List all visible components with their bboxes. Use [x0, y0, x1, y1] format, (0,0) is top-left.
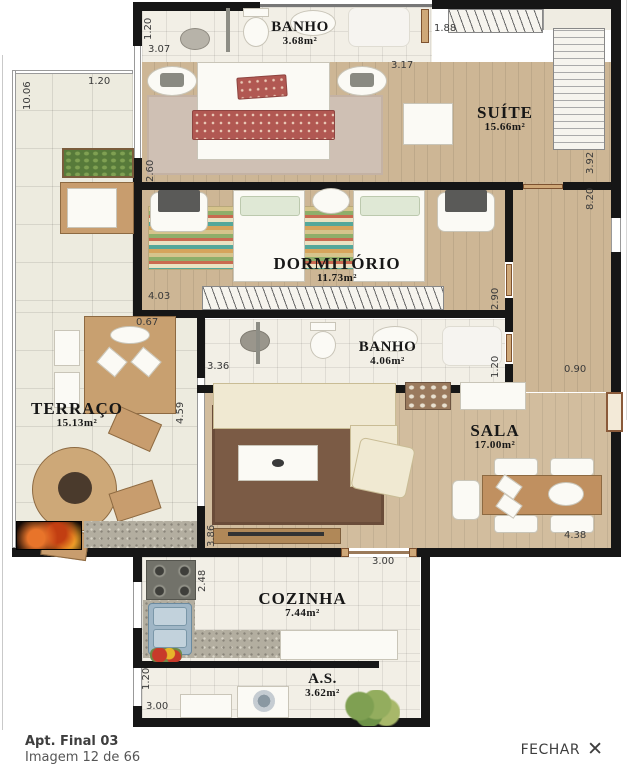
viewer-footer: Apt. Final 03 Imagem 12 de 66 FECHAR ✕ [0, 730, 629, 768]
bath1-pedestal-sink [180, 28, 210, 50]
room-area: 17.00m² [435, 440, 555, 452]
suite-terrace-glass-door [134, 46, 141, 158]
apartment-title: Apt. Final 03 [25, 734, 118, 749]
kitchen-window [133, 582, 142, 628]
close-button[interactable]: FECHAR ✕ [521, 740, 603, 759]
dimension-label: 10.06 [22, 81, 33, 110]
living-sofa [213, 383, 396, 429]
dimension-label: 1.20 [143, 18, 154, 40]
dining-chair [494, 515, 538, 533]
room-label-as: A.S. 3.62m² [270, 672, 375, 699]
bath2-shower-column [256, 322, 260, 364]
dimension-label: 3.00 [372, 556, 394, 567]
room-area: 3.62m² [270, 688, 375, 700]
room-name: BANHO [320, 340, 455, 356]
dining-platter [548, 482, 584, 506]
sink-basin [153, 629, 187, 648]
wall [133, 2, 142, 46]
room-label-sala: SALA 17.00m² [435, 422, 555, 451]
window-line [260, 4, 432, 7]
bath2-door [506, 334, 512, 362]
bath1-door [421, 9, 429, 43]
kitchen-stove [146, 560, 196, 600]
door-jamb [409, 548, 417, 557]
bath1-shower-column [226, 8, 230, 52]
laptop [445, 190, 487, 212]
terrace-grill [16, 521, 82, 550]
room-label-banho-suite: BANHO 3.68m² [235, 20, 365, 47]
room-name: COZINHA [240, 590, 365, 608]
room-name: BANHO [235, 20, 365, 36]
bedroom-center-table [312, 188, 350, 214]
room-label-suite: SUÍTE 15.66m² [445, 104, 565, 133]
kitchen-table [280, 630, 398, 660]
bedroom-door [506, 264, 512, 296]
bedroom-wardrobe [202, 286, 444, 310]
bed-pillow [240, 196, 300, 216]
room-area: 7.44m² [240, 608, 365, 620]
nightstand-decor [160, 73, 184, 87]
image-viewer: BANHO 3.68m² SUÍTE 15.66m² DORMITÓRIO 11… [0, 0, 629, 768]
suite-door [523, 184, 563, 189]
close-icon: ✕ [587, 740, 603, 759]
wall [197, 506, 205, 552]
dimension-label: 1.20 [490, 356, 501, 378]
wall [197, 312, 205, 378]
hall-floor [513, 182, 611, 392]
laptop [158, 190, 200, 212]
image-edge-right [626, 0, 627, 420]
room-area: 3.68m² [235, 36, 365, 48]
living-armchair [350, 437, 416, 500]
wall [421, 557, 430, 722]
terrace-stone-path [84, 521, 197, 548]
room-area: 4.06m² [320, 356, 455, 368]
dimension-label: 1.20 [141, 668, 152, 690]
table-centerpiece [110, 326, 150, 344]
dimension-label: 3.17 [391, 60, 413, 71]
room-label-dormitorio: DORMITÓRIO 11.73m² [248, 255, 426, 284]
terrace-railing-top [12, 70, 133, 74]
room-name: TERRAÇO [14, 400, 140, 418]
room-name: A.S. [270, 672, 375, 688]
sink-basin [153, 607, 187, 626]
terrace-planter [62, 148, 134, 178]
round-table-platter [58, 472, 92, 504]
tv-rack [213, 528, 341, 544]
room-name: SALA [435, 422, 555, 440]
coffee-table-remote [272, 459, 284, 467]
living-terrace-glass-door [197, 378, 205, 506]
living-sideboard [460, 382, 526, 410]
room-area: 15.66m² [445, 122, 565, 134]
dimension-label: 3.00 [146, 701, 168, 712]
kitchen-opening-sill [345, 551, 413, 554]
living-side-table [405, 382, 451, 410]
suite-closet-hatched [448, 9, 543, 33]
dimension-label: 1.20 [88, 76, 110, 87]
suite-closet-interior [543, 9, 611, 30]
wall [133, 661, 379, 668]
kitchen-flowers [150, 648, 182, 662]
dimension-label: 3.92 [585, 152, 596, 174]
dining-chair [494, 458, 538, 476]
dimension-label: 8.20 [585, 188, 596, 210]
dining-armchair [452, 480, 480, 520]
image-counter: Imagem 12 de 66 [25, 750, 140, 765]
floorplan-image: BANHO 3.68m² SUÍTE 15.66m² DORMITÓRIO 11… [0, 0, 629, 730]
dimension-label: 4.03 [148, 291, 170, 302]
terrace-railing-left [12, 70, 16, 548]
dimension-label: 4.38 [564, 530, 586, 541]
terrace-chair [54, 330, 80, 366]
room-name: SUÍTE [445, 104, 565, 122]
suite-bed-pillow [236, 74, 287, 99]
dimension-label: 0.90 [564, 364, 586, 375]
dining-chair [550, 458, 594, 476]
suite-bed-blanket [192, 110, 335, 140]
wall [611, 252, 621, 392]
wall [611, 432, 621, 557]
dimension-label: 3.86 [206, 525, 217, 547]
room-label-terraco: TERRAÇO 15.13m² [14, 400, 140, 429]
bath2-shower-head [240, 330, 270, 352]
terrace-bench-cushion [67, 188, 117, 228]
wall [611, 0, 621, 218]
wall [133, 182, 505, 190]
living-window [606, 392, 623, 432]
close-label: FECHAR [521, 742, 581, 758]
room-area: 11.73m² [248, 273, 426, 285]
bath1-toilet-tank [243, 8, 269, 17]
dimension-label: 2.60 [145, 160, 156, 182]
hall-window [611, 218, 621, 252]
room-label-cozinha: COZINHA 7.44m² [240, 590, 365, 619]
laundry-tank [180, 694, 232, 718]
room-name: DORMITÓRIO [248, 255, 426, 273]
dimension-label: 2.48 [197, 570, 208, 592]
dimension-label: 3.07 [148, 44, 170, 55]
image-edge-left [2, 55, 3, 768]
nightstand-decor [350, 73, 374, 87]
dimension-label: 1.88 [434, 23, 456, 34]
bath2-toilet-tank [310, 322, 336, 331]
room-label-banho-social: BANHO 4.06m² [320, 340, 455, 367]
dimension-label: 0.67 [136, 317, 158, 328]
dimension-label: 2.90 [490, 288, 501, 310]
wall [133, 310, 513, 318]
door-jamb [341, 548, 349, 557]
wall [413, 548, 611, 557]
tv [228, 532, 324, 536]
bed-pillow [360, 196, 420, 216]
wall [133, 2, 260, 11]
dimension-label: 3.36 [207, 361, 229, 372]
room-area: 15.13m² [14, 418, 140, 430]
dimension-label: 4.59 [175, 402, 186, 424]
wall [432, 0, 611, 9]
